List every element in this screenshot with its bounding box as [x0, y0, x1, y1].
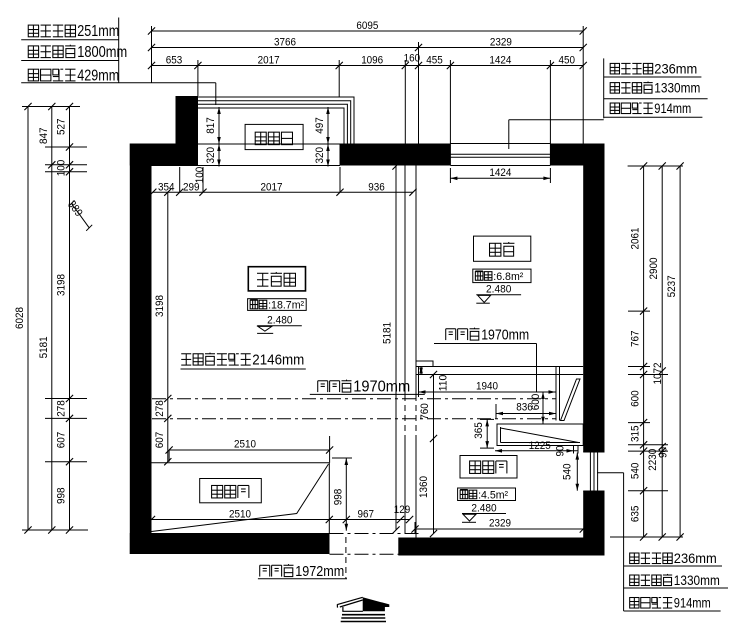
svg-text:5181: 5181 — [382, 322, 394, 344]
svg-text:967: 967 — [358, 509, 375, 521]
svg-text:3198: 3198 — [56, 274, 68, 296]
svg-text:1330mm: 1330mm — [674, 573, 720, 588]
svg-text:354: 354 — [158, 181, 175, 193]
svg-text:1072: 1072 — [652, 363, 664, 385]
svg-text:278: 278 — [154, 400, 166, 417]
svg-text:450: 450 — [559, 55, 576, 67]
svg-text:2146mm: 2146mm — [252, 352, 304, 369]
svg-text:315: 315 — [630, 425, 642, 442]
svg-text:600: 600 — [530, 394, 542, 411]
svg-text:1424: 1424 — [489, 167, 511, 179]
svg-text:2.480: 2.480 — [486, 283, 511, 295]
svg-text:455: 455 — [426, 55, 443, 67]
svg-text:527: 527 — [56, 119, 68, 136]
svg-text:653: 653 — [166, 55, 183, 67]
svg-text:429mm: 429mm — [77, 67, 119, 84]
svg-text:1972mm: 1972mm — [295, 563, 344, 580]
svg-text:497: 497 — [314, 117, 326, 134]
svg-text:936: 936 — [368, 181, 385, 193]
svg-text:2017: 2017 — [261, 181, 283, 193]
svg-text:1970mm: 1970mm — [481, 327, 529, 344]
svg-text:2329: 2329 — [489, 518, 511, 530]
svg-text:236mm: 236mm — [654, 61, 697, 76]
svg-text:129: 129 — [394, 504, 411, 516]
svg-text:635: 635 — [630, 506, 642, 523]
svg-text:607: 607 — [154, 432, 166, 449]
svg-text:90: 90 — [555, 446, 567, 457]
svg-text:1330mm: 1330mm — [654, 81, 700, 96]
svg-text:100: 100 — [56, 160, 68, 177]
svg-text:760: 760 — [419, 403, 431, 420]
svg-text:1225: 1225 — [529, 440, 551, 452]
svg-text:600: 600 — [630, 390, 642, 407]
svg-text:5237: 5237 — [666, 275, 678, 297]
svg-text:90: 90 — [658, 447, 670, 458]
svg-text:2900: 2900 — [648, 258, 660, 280]
svg-text:2017: 2017 — [258, 55, 280, 67]
svg-text:365: 365 — [473, 422, 485, 439]
svg-text:1424: 1424 — [489, 55, 511, 67]
svg-text::4.5m²: :4.5m² — [478, 489, 508, 501]
svg-text:2230: 2230 — [647, 449, 659, 471]
svg-text::6.8m²: :6.8m² — [493, 271, 523, 283]
svg-text:998: 998 — [332, 489, 344, 506]
svg-text:110: 110 — [438, 375, 450, 392]
svg-text:2510: 2510 — [234, 439, 256, 451]
svg-text:1940: 1940 — [476, 381, 498, 393]
svg-text:320: 320 — [314, 147, 326, 164]
svg-text:278: 278 — [56, 400, 68, 417]
svg-text:1800mm: 1800mm — [77, 44, 127, 61]
svg-text:540: 540 — [561, 463, 573, 480]
svg-text:2510: 2510 — [229, 509, 251, 521]
svg-text:6028: 6028 — [14, 307, 26, 329]
svg-text:1096: 1096 — [361, 55, 383, 67]
svg-text:3766: 3766 — [274, 37, 296, 49]
svg-text:299: 299 — [183, 181, 200, 193]
svg-text:3198: 3198 — [154, 295, 166, 317]
svg-text:251mm: 251mm — [77, 23, 119, 40]
svg-text:607: 607 — [56, 432, 68, 449]
svg-text:817: 817 — [205, 117, 217, 134]
svg-text::18.7m²: :18.7m² — [268, 299, 304, 311]
svg-text:998: 998 — [56, 488, 68, 505]
svg-text:540: 540 — [630, 463, 642, 480]
svg-text:320: 320 — [205, 147, 217, 164]
svg-text:5181: 5181 — [38, 336, 50, 358]
svg-text:2329: 2329 — [490, 37, 512, 49]
svg-text:914mm: 914mm — [654, 101, 691, 116]
svg-text:236mm: 236mm — [674, 551, 717, 566]
svg-text:847: 847 — [38, 127, 50, 144]
svg-text:914mm: 914mm — [674, 596, 711, 611]
svg-text:2.480: 2.480 — [267, 315, 292, 327]
svg-text:2.480: 2.480 — [471, 503, 496, 515]
svg-text:160: 160 — [404, 53, 421, 65]
svg-text:2061: 2061 — [630, 228, 642, 250]
svg-text:1970mm: 1970mm — [353, 379, 410, 396]
svg-text:767: 767 — [630, 331, 642, 348]
svg-text:1360: 1360 — [418, 476, 430, 498]
svg-text:6095: 6095 — [356, 20, 378, 32]
